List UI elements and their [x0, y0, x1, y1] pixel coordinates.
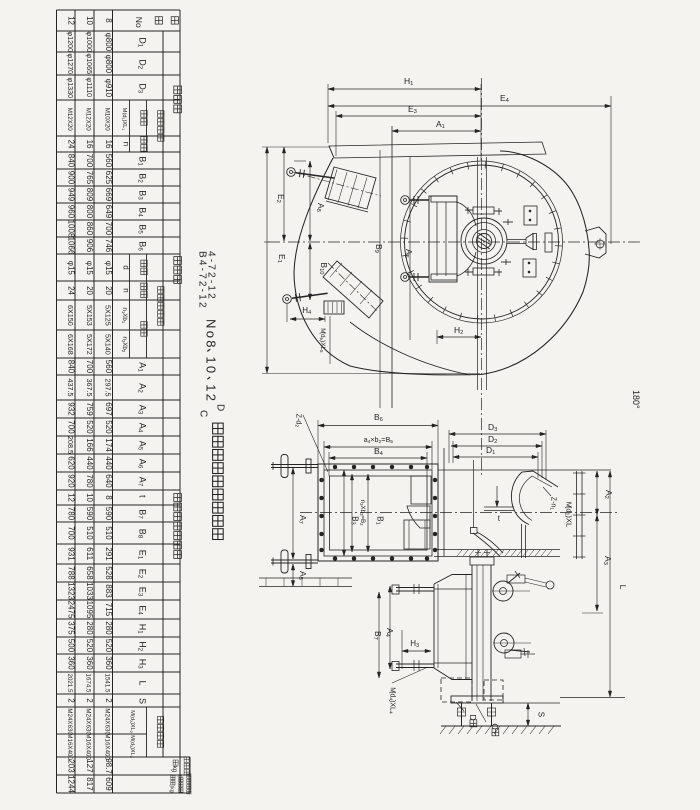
svg-text:L: L	[618, 585, 628, 590]
svg-text:φ1330: φ1330	[66, 78, 75, 99]
svg-text:φ1110: φ1110	[85, 78, 94, 98]
svg-text:(: (	[177, 775, 183, 777]
svg-text:φ800: φ800	[104, 55, 113, 74]
svg-text:5X125: 5X125	[104, 305, 113, 326]
svg-text:788: 788	[66, 566, 75, 580]
svg-text:2: 2	[104, 698, 113, 703]
svg-text:360: 360	[85, 656, 94, 670]
svg-text:B4-72-12: B4-72-12	[196, 251, 207, 310]
svg-text:φ15: φ15	[104, 261, 113, 276]
svg-text:12: 12	[66, 493, 75, 502]
svg-text:700: 700	[66, 420, 75, 434]
svg-text:M(d1)XL1: M(d1)XL1	[121, 108, 127, 131]
svg-text:φ15: φ15	[85, 261, 94, 276]
svg-text:M24X630: M24X630	[66, 708, 73, 735]
svg-text:d: d	[122, 265, 131, 269]
svg-text:L: L	[138, 681, 148, 686]
svg-text:932: 932	[66, 402, 75, 416]
svg-text:649: 649	[104, 205, 113, 219]
svg-text:840: 840	[66, 154, 75, 168]
svg-text:291: 291	[104, 547, 113, 561]
svg-text:1323: 1323	[66, 582, 75, 600]
svg-text:M24X630: M24X630	[85, 708, 92, 735]
svg-text:780: 780	[66, 507, 75, 521]
svg-text:2: 2	[85, 698, 94, 703]
svg-text:510: 510	[104, 526, 113, 540]
svg-text:C: C	[197, 410, 208, 417]
svg-text:)kg: )kg	[169, 785, 175, 792]
svg-text:12: 12	[203, 384, 218, 403]
svg-text:1244: 1244	[66, 775, 75, 793]
svg-text:375: 375	[66, 621, 75, 635]
svg-text:24: 24	[66, 286, 75, 295]
svg-text:280: 280	[104, 621, 113, 635]
svg-text:1674.5: 1674.5	[85, 674, 92, 693]
svg-text:M10X20: M10X20	[103, 108, 110, 132]
svg-text:700: 700	[85, 360, 94, 374]
svg-text:500: 500	[66, 639, 75, 653]
svg-text:16: 16	[104, 140, 113, 149]
svg-text:883: 883	[104, 584, 113, 598]
svg-text:1066: 1066	[66, 237, 75, 255]
svg-text:611: 611	[85, 547, 94, 560]
svg-text:1008: 1008	[66, 220, 75, 238]
svg-text:6X168: 6X168	[66, 334, 75, 355]
svg-text:φ1200: φ1200	[66, 32, 75, 53]
svg-text:280: 280	[85, 621, 94, 635]
svg-text:1095: 1095	[85, 601, 94, 619]
svg-text:590: 590	[104, 507, 113, 521]
svg-text:φ15: φ15	[66, 261, 75, 276]
svg-text:510: 510	[85, 526, 94, 540]
svg-text:8: 8	[104, 18, 113, 23]
svg-text:5X172: 5X172	[85, 334, 94, 355]
svg-text:φ1270: φ1270	[66, 54, 75, 75]
svg-text:S: S	[138, 698, 148, 704]
svg-text:180°: 180°	[631, 390, 641, 409]
svg-text:166: 166	[85, 438, 94, 452]
svg-text:M16X400: M16X400	[66, 733, 73, 760]
svg-text:669: 669	[104, 188, 113, 202]
svg-text:625: 625	[104, 171, 113, 185]
svg-text:520: 520	[104, 639, 113, 653]
svg-text:817: 817	[85, 777, 94, 791]
svg-text:M(d2)XL2: M(d2)XL2	[129, 710, 135, 733]
svg-text:10: 10	[203, 356, 218, 375]
svg-text:437.5: 437.5	[66, 379, 75, 397]
svg-text:M16X400: M16X400	[103, 733, 110, 760]
svg-text:528: 528	[104, 566, 113, 580]
svg-text:900: 900	[66, 171, 75, 185]
svg-text:920: 920	[66, 474, 75, 488]
svg-text:658: 658	[85, 566, 94, 580]
svg-text:780: 780	[85, 474, 94, 488]
svg-text:440: 440	[104, 456, 113, 470]
svg-text:φ1000: φ1000	[85, 32, 94, 53]
svg-text:20: 20	[85, 286, 94, 295]
svg-text:520: 520	[104, 420, 113, 434]
svg-text:360: 360	[104, 656, 113, 670]
svg-text:φ1065: φ1065	[85, 54, 94, 75]
svg-text:520: 520	[85, 639, 94, 653]
svg-text:931: 931	[66, 547, 75, 561]
svg-text:2021.5: 2021.5	[66, 674, 73, 693]
svg-text:XL: XL	[565, 518, 574, 527]
svg-text:n3Xb3=B2: n3Xb3=B2	[359, 500, 366, 526]
svg-text:16: 16	[85, 140, 94, 149]
svg-text:360: 360	[66, 656, 75, 670]
svg-text:906: 906	[85, 239, 94, 253]
svg-text:12: 12	[66, 16, 75, 25]
svg-text:M16X400: M16X400	[85, 733, 92, 760]
svg-text:203: 203	[66, 759, 75, 773]
svg-text:M24X630: M24X630	[103, 708, 110, 735]
svg-text:297.5: 297.5	[104, 379, 113, 397]
svg-text:560: 560	[104, 360, 113, 374]
svg-text:10: 10	[85, 16, 94, 25]
svg-text:20: 20	[104, 286, 113, 295]
svg-text:715: 715	[104, 603, 113, 617]
svg-text:949: 949	[66, 188, 75, 202]
svg-text:2475: 2475	[66, 601, 75, 619]
svg-text:98.7: 98.7	[104, 758, 113, 774]
svg-text:2: 2	[66, 698, 75, 703]
svg-text:8: 8	[104, 495, 113, 500]
svg-text:174: 174	[104, 438, 113, 452]
svg-text:S: S	[537, 712, 546, 717]
svg-text:24: 24	[66, 140, 75, 149]
svg-text:φ800: φ800	[104, 33, 113, 52]
svg-text:10: 10	[85, 493, 94, 502]
svg-text:640: 640	[104, 474, 113, 488]
svg-text:367.5: 367.5	[85, 379, 94, 397]
svg-text:560: 560	[104, 154, 113, 168]
svg-text:M(d3)XL3: M(d3)XL3	[129, 735, 135, 758]
svg-text:960: 960	[66, 205, 75, 219]
svg-text:No8: No8	[203, 319, 218, 350]
svg-text:n: n	[122, 142, 131, 146]
svg-text:n: n	[122, 288, 131, 292]
svg-text:M12X20: M12X20	[85, 108, 92, 132]
svg-text:5X140: 5X140	[104, 334, 113, 355]
svg-text:n1Xb1: n1Xb1	[121, 308, 128, 324]
svg-text:1033: 1033	[85, 582, 94, 600]
svg-text:520: 520	[85, 420, 94, 434]
svg-text:6X150: 6X150	[66, 305, 75, 326]
svg-text:809: 809	[85, 188, 94, 202]
svg-text:n2Xb2: n2Xb2	[121, 337, 128, 353]
svg-text:697: 697	[104, 402, 113, 416]
svg-text:620: 620	[66, 456, 75, 470]
svg-text:759: 759	[85, 402, 94, 416]
svg-text:860: 860	[85, 222, 94, 236]
svg-text:XL5: XL5	[319, 342, 326, 353]
svg-text:kg: kg	[171, 766, 178, 773]
svg-text:800: 800	[85, 205, 94, 219]
svg-text:φ910: φ910	[104, 79, 113, 98]
svg-text:M12X20: M12X20	[66, 108, 73, 132]
svg-text:609: 609	[104, 777, 113, 791]
svg-text:840: 840	[66, 360, 75, 374]
svg-text:440: 440	[85, 456, 94, 470]
svg-text:127: 127	[85, 759, 94, 773]
svg-text:700: 700	[85, 154, 94, 168]
svg-text:590: 590	[85, 507, 94, 521]
svg-text:765: 765	[85, 171, 94, 185]
svg-text:No: No	[134, 17, 144, 28]
svg-text:746: 746	[104, 239, 113, 253]
svg-text:D: D	[214, 404, 225, 411]
svg-text:208.5: 208.5	[66, 436, 75, 454]
svg-text:5X153: 5X153	[85, 305, 94, 326]
svg-text:700: 700	[104, 222, 113, 236]
svg-text:700: 700	[66, 526, 75, 540]
svg-text:1541.5: 1541.5	[103, 674, 110, 693]
